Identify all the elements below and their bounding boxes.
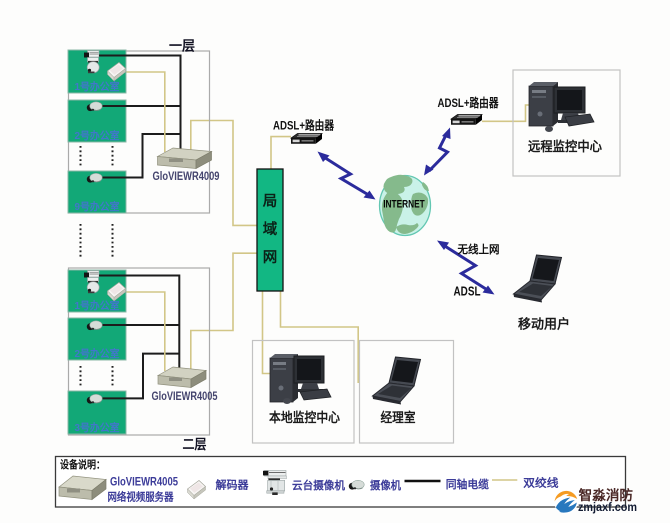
svg-text:本地监控中心: 本地监控中心 — [269, 410, 340, 425]
svg-text:双绞线: 双绞线 — [523, 476, 558, 490]
svg-text:设备说明：: 设备说明： — [60, 458, 105, 471]
svg-text:3号办公室: 3号办公室 — [75, 421, 120, 434]
svg-text:一层: 一层 — [169, 39, 195, 54]
svg-text:9号办公室: 9号办公室 — [75, 200, 120, 213]
svg-text:2号办公室: 2号办公室 — [75, 347, 120, 360]
svg-text:ADSL+路由器: ADSL+路由器 — [273, 118, 335, 133]
svg-text:云台摄像机: 云台摄像机 — [292, 478, 345, 492]
svg-text:同轴电缆: 同轴电缆 — [446, 477, 489, 491]
svg-text:摄像机: 摄像机 — [370, 478, 401, 492]
svg-text:远程监控中心: 远程监控中心 — [528, 139, 602, 154]
svg-text:移动用户: 移动用户 — [518, 317, 570, 332]
svg-text:无线上网: 无线上网 — [457, 242, 500, 256]
svg-text:二层: 二层 — [183, 437, 207, 452]
svg-text:zmjaxf.com: zmjaxf.com — [578, 500, 637, 514]
svg-text:ADSL: ADSL — [454, 284, 481, 299]
svg-text:网络视频服务器: 网络视频服务器 — [108, 490, 175, 504]
svg-text:2号办公室: 2号办公室 — [75, 129, 120, 142]
svg-text:域: 域 — [263, 220, 278, 238]
svg-text:GloVIEWR4005: GloVIEWR4005 — [110, 477, 178, 489]
svg-text:1号办公室: 1号办公室 — [75, 299, 120, 312]
svg-text:1号办公室: 1号办公室 — [75, 80, 120, 93]
svg-text:局: 局 — [263, 193, 278, 210]
svg-text:ADSL+路由器: ADSL+路由器 — [438, 95, 500, 110]
svg-text:GloVIEWR4005: GloVIEWR4005 — [152, 391, 218, 403]
svg-text:经理室: 经理室 — [381, 410, 416, 425]
svg-text:GloVIEWR4009: GloVIEWR4009 — [153, 171, 220, 183]
svg-text:网: 网 — [263, 249, 278, 266]
svg-text:INTERNET: INTERNET — [383, 199, 425, 211]
svg-text:解码器: 解码器 — [216, 478, 250, 492]
